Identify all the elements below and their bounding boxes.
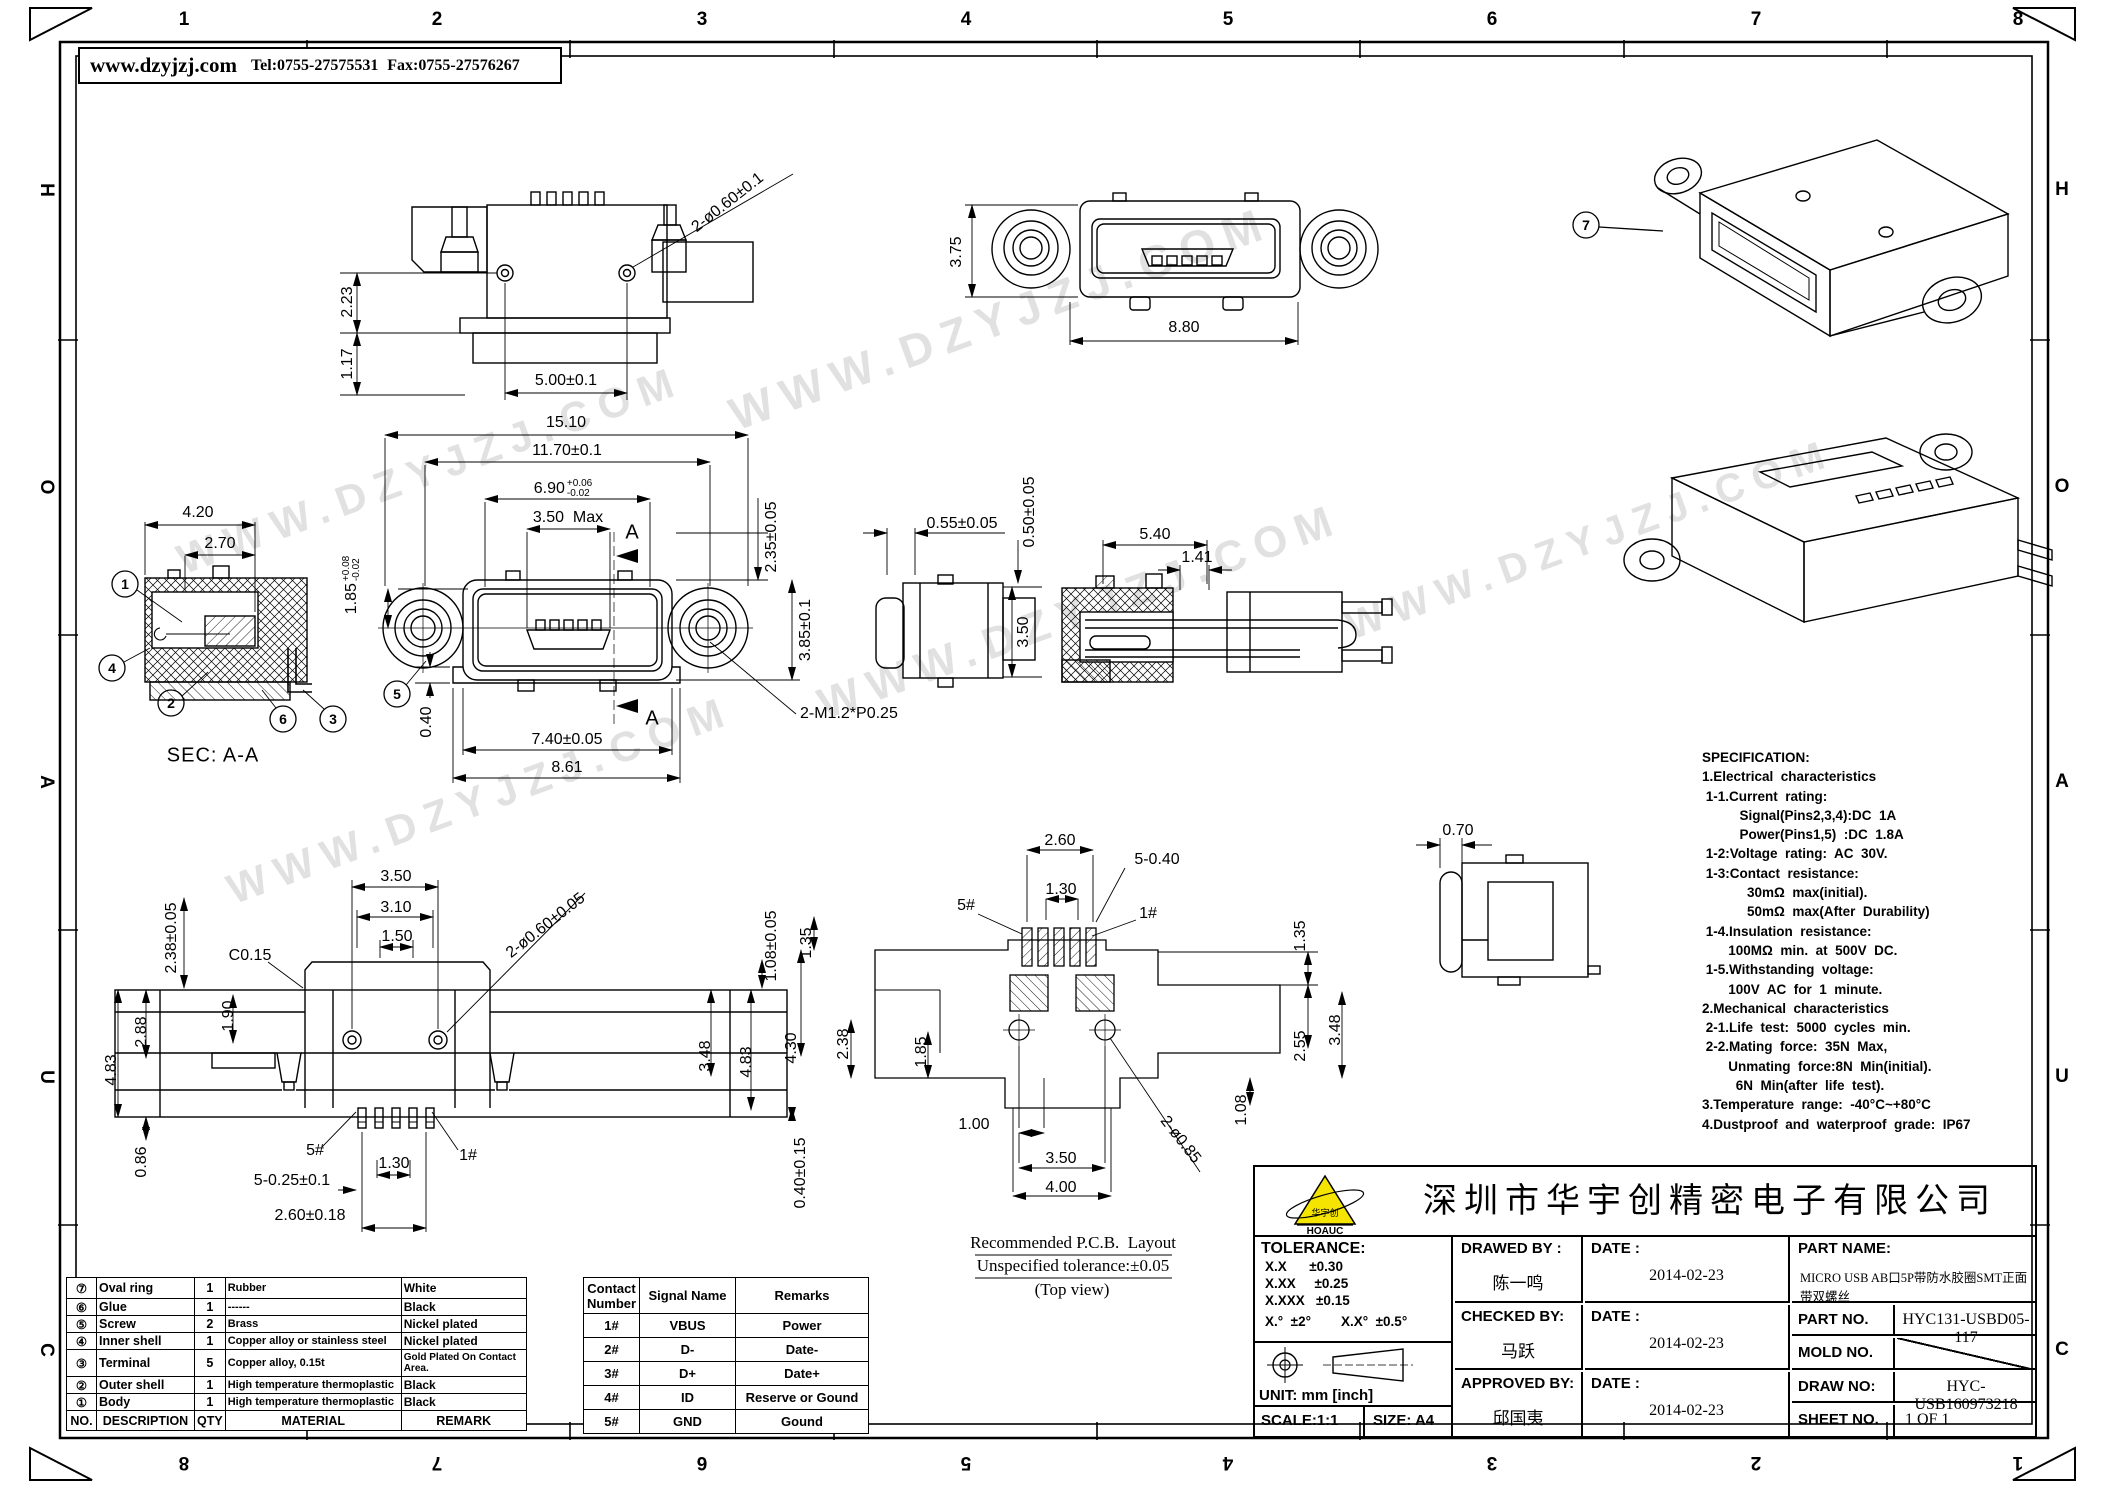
pcb-caption: (Top view) xyxy=(1035,1280,1110,1300)
dim-label: 4.00 xyxy=(1045,1179,1076,1197)
contact-table: Contact NumberSignal NameRemarks 1#VBUSP… xyxy=(583,1277,869,1434)
dim-label: 1.30 xyxy=(1045,881,1076,899)
zone-letter: O xyxy=(35,480,57,495)
callout-6: 6 xyxy=(279,711,287,727)
zone-number: 5 xyxy=(961,1451,972,1473)
header-contact-bar: www.dzyjzj.com Tel:0755-27575531 Fax:075… xyxy=(78,47,562,84)
drawed-by-cell: DRAWED BY : 陈一鸣 xyxy=(1455,1237,1583,1303)
projection-cell: UNIT: mm [inch] xyxy=(1255,1343,1453,1407)
company-logo: 华宇创 HOAUC xyxy=(1273,1172,1383,1234)
dim-label: 1.35 xyxy=(798,927,816,958)
callout-5: 5 xyxy=(393,686,401,702)
zone-number: 4 xyxy=(1223,1451,1234,1473)
svg-text:华宇创: 华宇创 xyxy=(1311,1207,1338,1218)
dim-label: 0.50±0.05 xyxy=(1021,476,1039,547)
website-text: www.dzyjzj.com xyxy=(90,53,237,78)
dim-label: 3.50 xyxy=(380,868,411,886)
dim-label: 1.08 xyxy=(1233,1094,1251,1125)
zone-letter: U xyxy=(2055,1066,2069,1088)
dim-label: 8.61 xyxy=(551,759,582,777)
zone-number: 1 xyxy=(2013,1451,2024,1473)
zone-number: 5 xyxy=(1223,9,1234,31)
dim-label: 3.48 xyxy=(697,1040,715,1071)
zone-letter: C xyxy=(2055,1339,2069,1361)
dim-label: 2-M1.2*P0.25 xyxy=(800,705,898,723)
dim-label: 0.70 xyxy=(1442,822,1473,840)
zone-number: 2 xyxy=(1751,1451,1762,1473)
pcb-caption: Unspecified tolerance:±0.05 xyxy=(977,1256,1169,1276)
zone-letter: H xyxy=(2055,179,2069,201)
dim-label: 8.80 xyxy=(1168,319,1199,337)
dim-label: 2.70 xyxy=(204,535,235,553)
svg-text:HOAUC: HOAUC xyxy=(1307,1226,1344,1234)
size-cell: SIZE: A4 xyxy=(1367,1407,1453,1436)
dim-label: 0.40±0.15 xyxy=(792,1137,810,1208)
dim-label: 1.30 xyxy=(378,1155,409,1173)
approved-date-cell: DATE : 2014-02-23 xyxy=(1585,1372,1790,1436)
pcb-caption: Recommended P.C.B. Layout xyxy=(970,1233,1176,1253)
zone-number: 6 xyxy=(697,1451,708,1473)
zone-number: 2 xyxy=(432,9,443,31)
dim-label: 5.00±0.1 xyxy=(535,372,597,390)
sheet-no-cell: SHEET NO. 1 OF 1 xyxy=(1792,1405,2035,1436)
dim-label: 3.75 xyxy=(948,236,966,267)
callout-4: 4 xyxy=(108,660,116,676)
zone-letter: A xyxy=(35,775,57,789)
zone-number: 8 xyxy=(2013,9,2024,31)
zone-number: 3 xyxy=(1487,1451,1498,1473)
zone-number: 4 xyxy=(961,9,972,31)
dim-label: 5.40 xyxy=(1139,526,1170,544)
dim-label: 2.88 xyxy=(133,1016,151,1047)
dim-label: 1.41 xyxy=(1181,549,1212,567)
dim-label: 2.55 xyxy=(1292,1030,1310,1061)
part-no-cell: PART NO. HYC131-USBD05-117 xyxy=(1792,1305,2035,1336)
pin-label: 1# xyxy=(459,1147,477,1165)
dim-label: 2.23 xyxy=(339,286,357,317)
dim-label: 3.50 xyxy=(1015,616,1033,647)
checked-by-cell: CHECKED BY: 马跃 xyxy=(1455,1305,1583,1370)
dim-label: 1.08±0.05 xyxy=(763,910,781,981)
scale-cell: SCALE:1:1 xyxy=(1255,1407,1365,1436)
company-name: 深圳市华宇创精密电子有限公司 xyxy=(1395,1167,2025,1237)
zone-number: 7 xyxy=(432,1451,443,1473)
dim-label: 6.90+0.06-0.02 xyxy=(534,479,592,499)
dim-label: 4.30 xyxy=(783,1032,801,1063)
callout-3: 3 xyxy=(329,711,337,727)
checked-date-cell: DATE : 2014-02-23 xyxy=(1585,1305,1790,1370)
dim-label: 2.35±0.05 xyxy=(763,501,781,572)
materials-table: ⑦Oval ring1RubberWhite ⑥Glue1------Black… xyxy=(66,1277,527,1431)
dim-label: 3.50 Max xyxy=(533,509,603,527)
zone-letter: C xyxy=(35,1343,57,1357)
specification-text: SPECIFICATION:1.Electrical characteristi… xyxy=(1702,748,1971,1134)
dim-label: 2.38 xyxy=(835,1028,853,1059)
title-block: 华宇创 HOAUC 深圳市华宇创精密电子有限公司 TOLERANCE: X.X … xyxy=(1253,1165,2037,1438)
zone-letter: U xyxy=(35,1070,57,1084)
dim-label: 11.70±0.1 xyxy=(532,442,602,460)
draw-no-cell: DRAW NO: HYC-USB160973218 xyxy=(1792,1372,2035,1403)
dim-label: 4.83 xyxy=(738,1046,756,1077)
dim-label: 3.85±0.1 xyxy=(797,599,815,661)
drawed-date-cell: DATE : 2014-02-23 xyxy=(1585,1237,1790,1303)
mold-no-empty xyxy=(1897,1338,2035,1370)
dim-label: 1.00 xyxy=(958,1116,989,1134)
callout-7: 7 xyxy=(1582,217,1590,233)
dim-label: 3.10 xyxy=(380,899,411,917)
dim-label: 0.55±0.05 xyxy=(926,515,997,533)
dim-label: 2.60 xyxy=(1044,832,1075,850)
dim-label: 7.40±0.05 xyxy=(531,731,602,749)
zone-number: 7 xyxy=(1751,9,1762,31)
dim-label: 0.86 xyxy=(133,1146,151,1177)
dim-label: C0.15 xyxy=(229,947,272,965)
dim-label: 4.20 xyxy=(182,504,213,522)
section-caption: SEC: A-A xyxy=(167,745,259,768)
projection-symbol xyxy=(1263,1347,1443,1383)
part-name-cell: PART NAME: MICRO USB AB口5P带防水胶圈SMT正面带双螺丝 xyxy=(1792,1237,2035,1303)
section-letter: A xyxy=(625,522,638,545)
dim-label: 3.50 xyxy=(1045,1150,1076,1168)
zone-letter: A xyxy=(2055,771,2069,793)
dim-label: 1.85 xyxy=(913,1036,931,1067)
pin-label: 1# xyxy=(1139,905,1157,923)
dim-label: 1.35 xyxy=(1292,920,1310,951)
callout-2: 2 xyxy=(167,695,175,711)
zone-letter: H xyxy=(35,183,57,197)
mold-no-cell: MOLD NO. xyxy=(1792,1338,2035,1370)
dim-label: 1.85+0.08-0.02 xyxy=(342,556,362,614)
tolerance-cell: TOLERANCE: X.X ±0.30 X.XX ±0.25 X.XXX ±0… xyxy=(1255,1237,1453,1343)
dim-label: 0.40 xyxy=(418,706,436,737)
dim-label: 1.17 xyxy=(339,348,357,379)
callout-1: 1 xyxy=(121,576,129,592)
dim-label: 15.10 xyxy=(546,414,586,432)
section-letter: A xyxy=(645,708,658,731)
dim-label: 2.38±0.05 xyxy=(163,902,181,973)
dim-label: 5-0.25±0.1 xyxy=(254,1172,330,1190)
drawing-sheet: WWW.DZYJZJ.COM WWW.DZYJZJ.COM WWW.DZYJZJ… xyxy=(0,0,2105,1488)
dim-label: 4.83 xyxy=(103,1054,121,1085)
pin-label: 5# xyxy=(306,1142,324,1160)
dim-label: 2.60±0.18 xyxy=(274,1207,345,1225)
zone-number: 1 xyxy=(179,9,190,31)
dim-label: 1.90 xyxy=(220,1000,238,1031)
dim-label: 1.50 xyxy=(381,928,412,946)
pin-label: 5# xyxy=(957,897,975,915)
dim-label: 3.48 xyxy=(1327,1014,1345,1045)
tel-text: Tel:0755-27575531 xyxy=(251,57,378,75)
zone-number: 8 xyxy=(179,1451,190,1473)
approved-by-cell: APPROVED BY: 邱国夷 xyxy=(1455,1372,1583,1436)
zone-number: 6 xyxy=(1487,9,1498,31)
company-band: 华宇创 HOAUC 深圳市华宇创精密电子有限公司 xyxy=(1255,1167,2035,1237)
zone-letter: O xyxy=(2055,476,2070,498)
zone-number: 3 xyxy=(697,9,708,31)
fax-text: Fax:0755-27576267 xyxy=(387,57,519,75)
dim-label: 5-0.40 xyxy=(1134,851,1179,869)
